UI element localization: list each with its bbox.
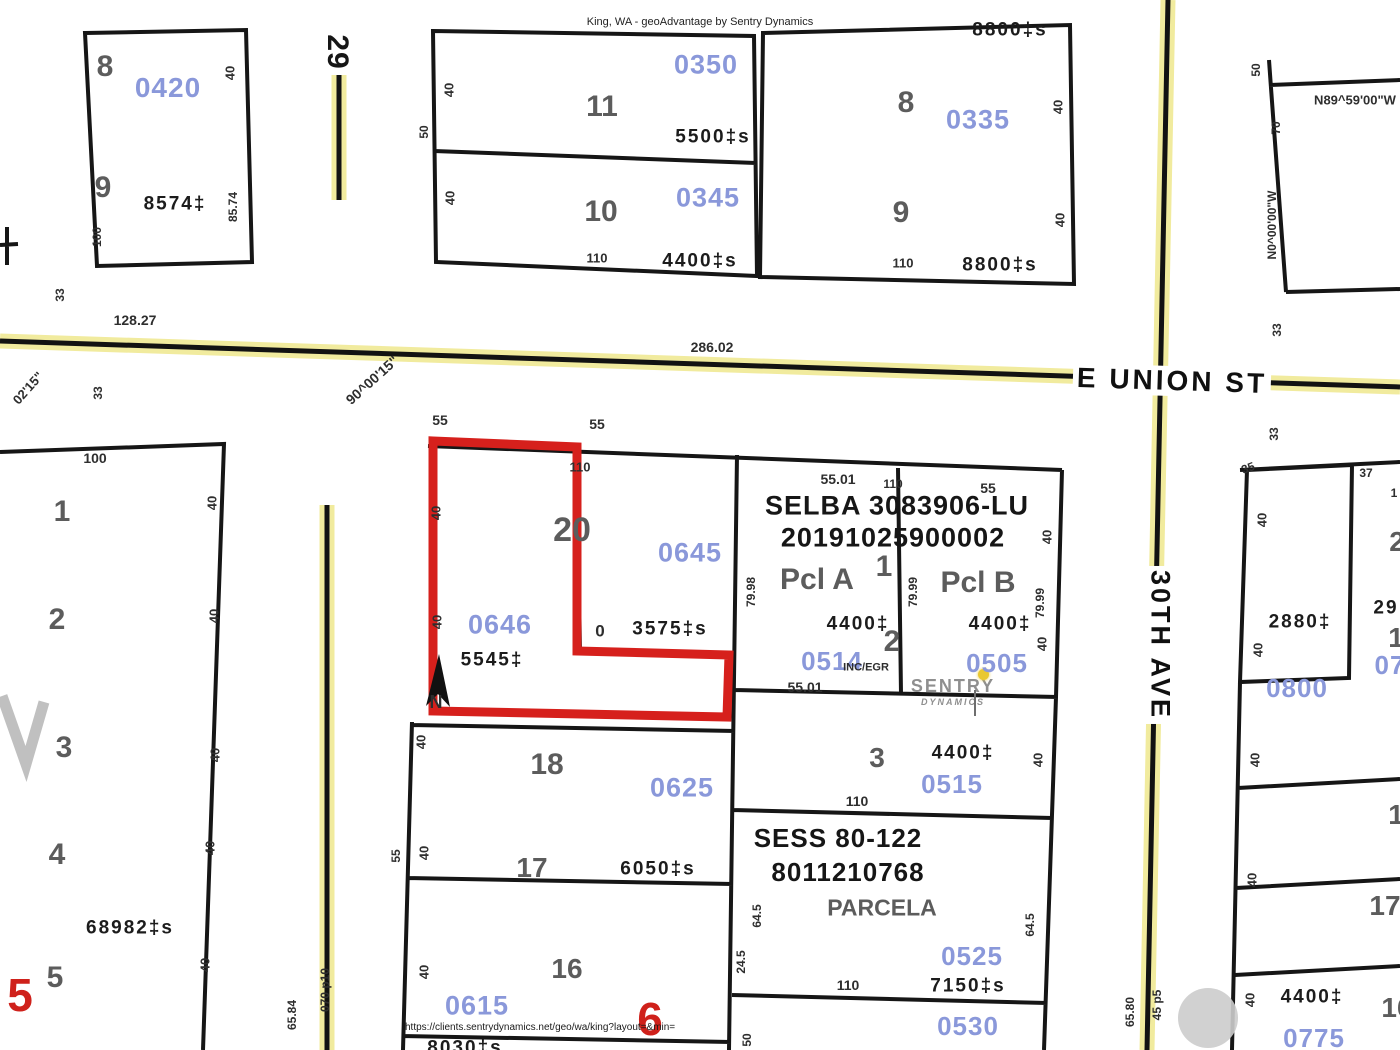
dim-110: 110 (837, 978, 860, 992)
pid-0515: 0515 (921, 771, 983, 797)
dim-40: 40 (1246, 873, 1259, 887)
logo-stem-mark (974, 690, 976, 716)
dim-40: 40 (415, 735, 428, 749)
area-8800: 8800‡s (962, 256, 1037, 275)
dim-40: 40 (206, 496, 219, 510)
dim-40: 40 (443, 83, 456, 97)
pid-0800: 0800 (1266, 675, 1328, 701)
lot-9-ne: 9 (893, 198, 910, 228)
dim-55: 55 (589, 417, 605, 431)
dim-40: 40 (199, 958, 212, 972)
area-4400-d: 4400‡ (1281, 988, 1344, 1007)
dim-40: 40 (1052, 100, 1065, 114)
dim-110: 110 (570, 461, 591, 474)
area-4400-b: 4400‡ (969, 615, 1032, 634)
dim-40: 40 (430, 506, 443, 520)
logo-dynamics-text: DYNAMICS (903, 697, 1003, 707)
dim-40: 40 (1256, 513, 1269, 527)
dim-5501: 55.01 (820, 472, 855, 486)
dim-100: 100 (83, 451, 106, 465)
street-e-union-st: E UNION ST (1072, 363, 1271, 399)
pid-0646: 0646 (468, 612, 532, 639)
lot-1-selba: 1 (876, 552, 893, 582)
dim-645: 64.5 (1024, 913, 1036, 936)
lot-1: 1 (54, 497, 71, 527)
pid-07-frag: 07 (1375, 652, 1400, 678)
dim-7998: 79.98 (745, 577, 757, 607)
plat-selba-2: 20191025900002 (781, 525, 1005, 552)
lot-1-frag: 1 (1388, 624, 1400, 652)
dim-5501: 55.01 (787, 680, 822, 694)
dim-110: 110 (883, 478, 902, 490)
lot-16: 16 (551, 955, 582, 983)
watermark-circle (1178, 988, 1238, 1048)
highlight-outline (433, 441, 729, 717)
area-8030: 8030‡s (427, 1039, 502, 1050)
dim-55: 55 (432, 413, 448, 427)
dim-12827: 128.27 (114, 313, 157, 327)
road-29-label: 29 (322, 34, 352, 69)
dim-40: 40 (1032, 753, 1045, 767)
lot-2-selba: 2 (884, 627, 901, 657)
lot-17: 17 (516, 854, 547, 882)
dim-33: 33 (1268, 427, 1280, 440)
dim-50: 50 (741, 1033, 753, 1046)
dim-70: 70 (1270, 121, 1282, 134)
dim-50: 50 (418, 125, 430, 138)
lot-4: 4 (49, 840, 66, 870)
area-3575: 3575‡s (632, 620, 707, 639)
parcel-a-label: PARCELA (827, 897, 936, 920)
area-4400-a: 4400‡ (827, 615, 890, 634)
dim-40: 40 (1041, 530, 1054, 544)
sentry-dynamics-watermark: SENTRY DYNAMICS (903, 676, 1003, 707)
lot-18: 18 (530, 750, 563, 780)
pid-0345: 0345 (676, 185, 740, 212)
area-5545: 5545‡ (461, 651, 524, 670)
map-layers (0, 0, 1400, 1050)
lot-9-nw: 9 (95, 173, 112, 203)
pcl-b: Pcl B (940, 568, 1015, 598)
pid-0525: 0525 (941, 943, 1003, 969)
dim-33: 33 (92, 386, 104, 399)
lot-10: 10 (584, 197, 617, 227)
dim-245: 24.5 (735, 950, 747, 973)
lot-5: 5 (47, 963, 64, 993)
dim-110: 110 (587, 252, 608, 265)
pid-0775: 0775 (1283, 1025, 1345, 1050)
lot-1-frag2: 1 (1388, 801, 1400, 829)
pid-0335: 0335 (946, 107, 1010, 134)
dim-110: 110 (846, 794, 869, 808)
plat-sess-1: SESS 80-122 (754, 825, 923, 851)
dim-110: 110 (893, 257, 914, 270)
lot-16-frag: 16 (1381, 994, 1400, 1022)
lot-8-ne: 8 (898, 88, 915, 118)
block-5-red: 5 (7, 972, 33, 1018)
area-4400-c: 4400‡ (932, 744, 995, 763)
dim-40: 40 (418, 846, 431, 860)
source-url-text: https://clients.sentrydynamics.net/geo/w… (405, 1022, 675, 1033)
area-6050: 6050‡s (620, 860, 695, 879)
map-header-title: King, WA - geoAdvantage by Sentry Dynami… (587, 16, 813, 28)
note-inc-egr: INC/EGR (843, 663, 889, 674)
logo-sentry-text: SENTRY (903, 676, 1003, 697)
dim-645: 64.5 (751, 904, 763, 927)
street-30th-ave: 30TH AVE (1146, 566, 1175, 724)
area-29-frag: 29 (1373, 599, 1398, 618)
lot-2-frag: 2 (1389, 528, 1400, 556)
dim-40: 40 (224, 66, 237, 80)
bearing-n0: N0^00'00"W (1266, 191, 1278, 260)
dim-070p10: 070 p10 (319, 968, 331, 1012)
dim-55: 55 (390, 849, 402, 862)
area-7150: 7150‡s (930, 977, 1005, 996)
dim-50: 50 (1250, 63, 1262, 76)
lot-20: 20 (553, 513, 591, 547)
area-8574: 8574‡ (144, 195, 207, 214)
pid-0420: 0420 (135, 74, 201, 102)
dim-40: 40 (1249, 753, 1262, 767)
lot-17-frag: 17 (1369, 892, 1400, 920)
dim-40: 40 (1244, 993, 1257, 1007)
area-2880: 2880‡ (1269, 613, 1332, 632)
dim-40: 40 (1252, 643, 1265, 657)
dim-33: 33 (1271, 323, 1283, 336)
dim-100: 100 (91, 227, 103, 247)
pid-0530: 0530 (937, 1013, 999, 1039)
pid-0350: 0350 (674, 52, 738, 79)
lot-2: 2 (49, 605, 66, 635)
area-68982: 68982‡s (86, 919, 174, 938)
dim-8574: 85.74 (227, 192, 239, 222)
dim-40: 40 (208, 609, 221, 623)
lot-8-nw: 8 (97, 52, 114, 82)
pid-0615: 0615 (445, 993, 509, 1020)
dim-6584: 65.84 (286, 1000, 298, 1030)
dim-6580: 65.80 (1124, 997, 1136, 1027)
bearing-n89: N89^59'00"W (1314, 94, 1396, 107)
dim-1-frag: 1 (1391, 487, 1398, 499)
dim-40: 40 (209, 748, 222, 762)
dim-40: 40 (204, 841, 217, 855)
dim-37: 37 (1359, 467, 1372, 479)
dim-40: 40 (418, 965, 431, 979)
pid-0625: 0625 (650, 775, 714, 802)
plat-sess-2: 8011210768 (771, 859, 924, 885)
dim-28602: 286.02 (691, 340, 734, 354)
lot-3-e: 3 (869, 744, 885, 772)
area-8800-top: 8800‡s (972, 21, 1047, 40)
dim-110-frag: 0 (595, 623, 604, 640)
block-6-red: 6 (637, 996, 663, 1042)
pid-0505: 0505 (966, 650, 1028, 676)
plat-selba-1: SELBA 3083906-LU (765, 493, 1029, 520)
watermark-chevron (2, 696, 44, 764)
lot-11: 11 (586, 92, 618, 122)
dim-7999: 79.99 (907, 577, 919, 607)
dim-45p5: 45 p5 (1151, 990, 1163, 1021)
dim-40: 40 (1054, 213, 1067, 227)
pid-0645: 0645 (658, 540, 722, 567)
dim-40: 40 (1036, 637, 1049, 651)
dim-7999: 79.99 (1034, 588, 1046, 618)
area-5500: 5500‡s (675, 128, 750, 147)
pcl-a: Pcl A (780, 565, 854, 595)
parcel-map-canvas[interactable]: King, WA - geoAdvantage by Sentry Dynami… (0, 0, 1400, 1050)
dim-40: 40 (431, 615, 444, 629)
dim-33: 33 (54, 288, 66, 301)
north-n: N (430, 693, 443, 711)
area-4400s: 4400‡s (662, 252, 737, 271)
lot-3-w: 3 (56, 733, 73, 763)
dim-40: 40 (444, 191, 457, 205)
